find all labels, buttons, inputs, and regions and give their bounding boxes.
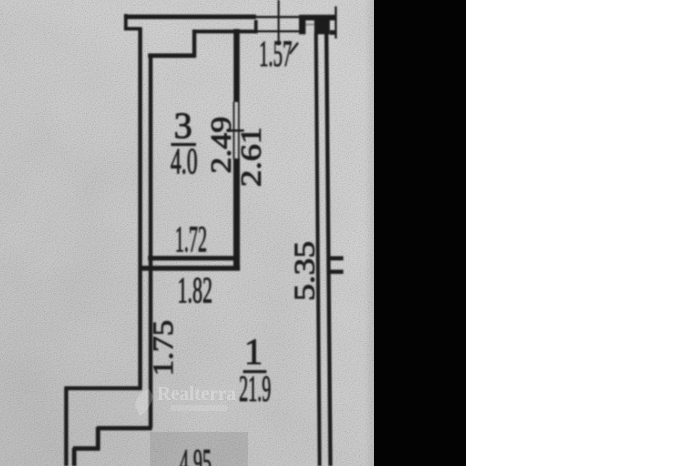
svg-text:1.75: 1.75 [148, 320, 180, 376]
svg-text:4.0: 4.0 [171, 142, 198, 183]
svg-text:5.35: 5.35 [289, 241, 321, 301]
svg-text:1.72: 1.72 [175, 220, 207, 261]
svg-text:21.9: 21.9 [239, 369, 271, 410]
svg-text:1.57: 1.57 [259, 34, 292, 75]
svg-text:2.49: 2.49 [206, 117, 238, 174]
svg-text:4.95: 4.95 [180, 443, 212, 467]
svg-text:1.82: 1.82 [178, 271, 213, 312]
svg-text:Realterra: Realterra [157, 383, 236, 405]
svg-text:2.61: 2.61 [236, 127, 268, 187]
svg-text:1: 1 [244, 332, 263, 373]
